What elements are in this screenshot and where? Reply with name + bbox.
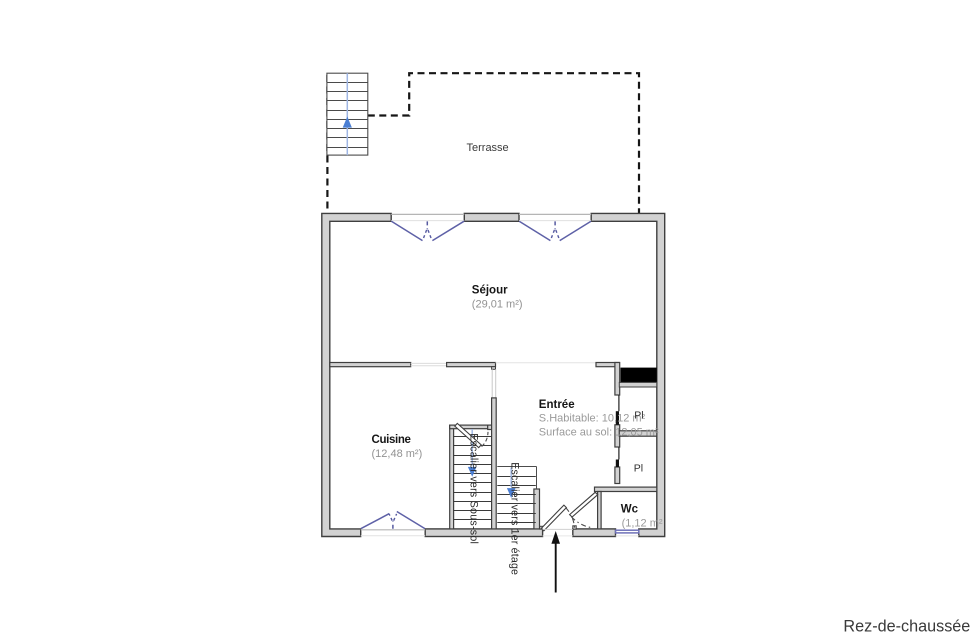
svg-text:Surface au sol: 12,05 m²: Surface au sol: 12,05 m² bbox=[539, 427, 659, 439]
svg-text:Terrasse: Terrasse bbox=[467, 142, 509, 154]
svg-text:Cuisine: Cuisine bbox=[372, 434, 411, 446]
svg-text:Rez-de-chaussée: Rez-de-chaussée bbox=[843, 618, 970, 636]
svg-text:Escalier vers 1er étage: Escalier vers 1er étage bbox=[509, 462, 521, 575]
svg-text:Entrée: Entrée bbox=[539, 399, 575, 411]
svg-text:Séjour: Séjour bbox=[472, 284, 508, 296]
svg-text:Pl: Pl bbox=[634, 463, 643, 475]
svg-text:(29,01 m²): (29,01 m²) bbox=[472, 298, 523, 310]
svg-text:Wc: Wc bbox=[621, 503, 639, 515]
svg-text:(12,48 m²): (12,48 m²) bbox=[372, 448, 423, 460]
svg-text:S.Habitable: 10,12 m²: S.Habitable: 10,12 m² bbox=[539, 413, 646, 425]
svg-text:Pl: Pl bbox=[634, 409, 643, 421]
svg-text:(1,12 m²: (1,12 m² bbox=[622, 518, 663, 530]
svg-text:Escalier vers Sous-sol: Escalier vers Sous-sol bbox=[468, 433, 480, 544]
